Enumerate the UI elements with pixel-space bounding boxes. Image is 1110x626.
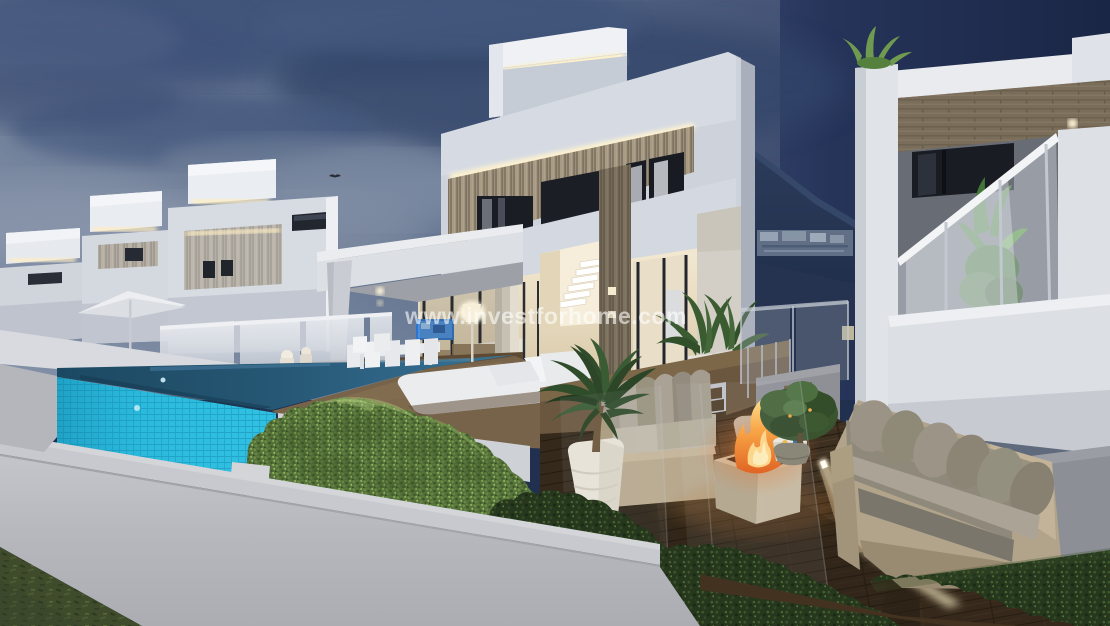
svg-text:www.investforhome.com: www.investforhome.com (404, 303, 687, 329)
